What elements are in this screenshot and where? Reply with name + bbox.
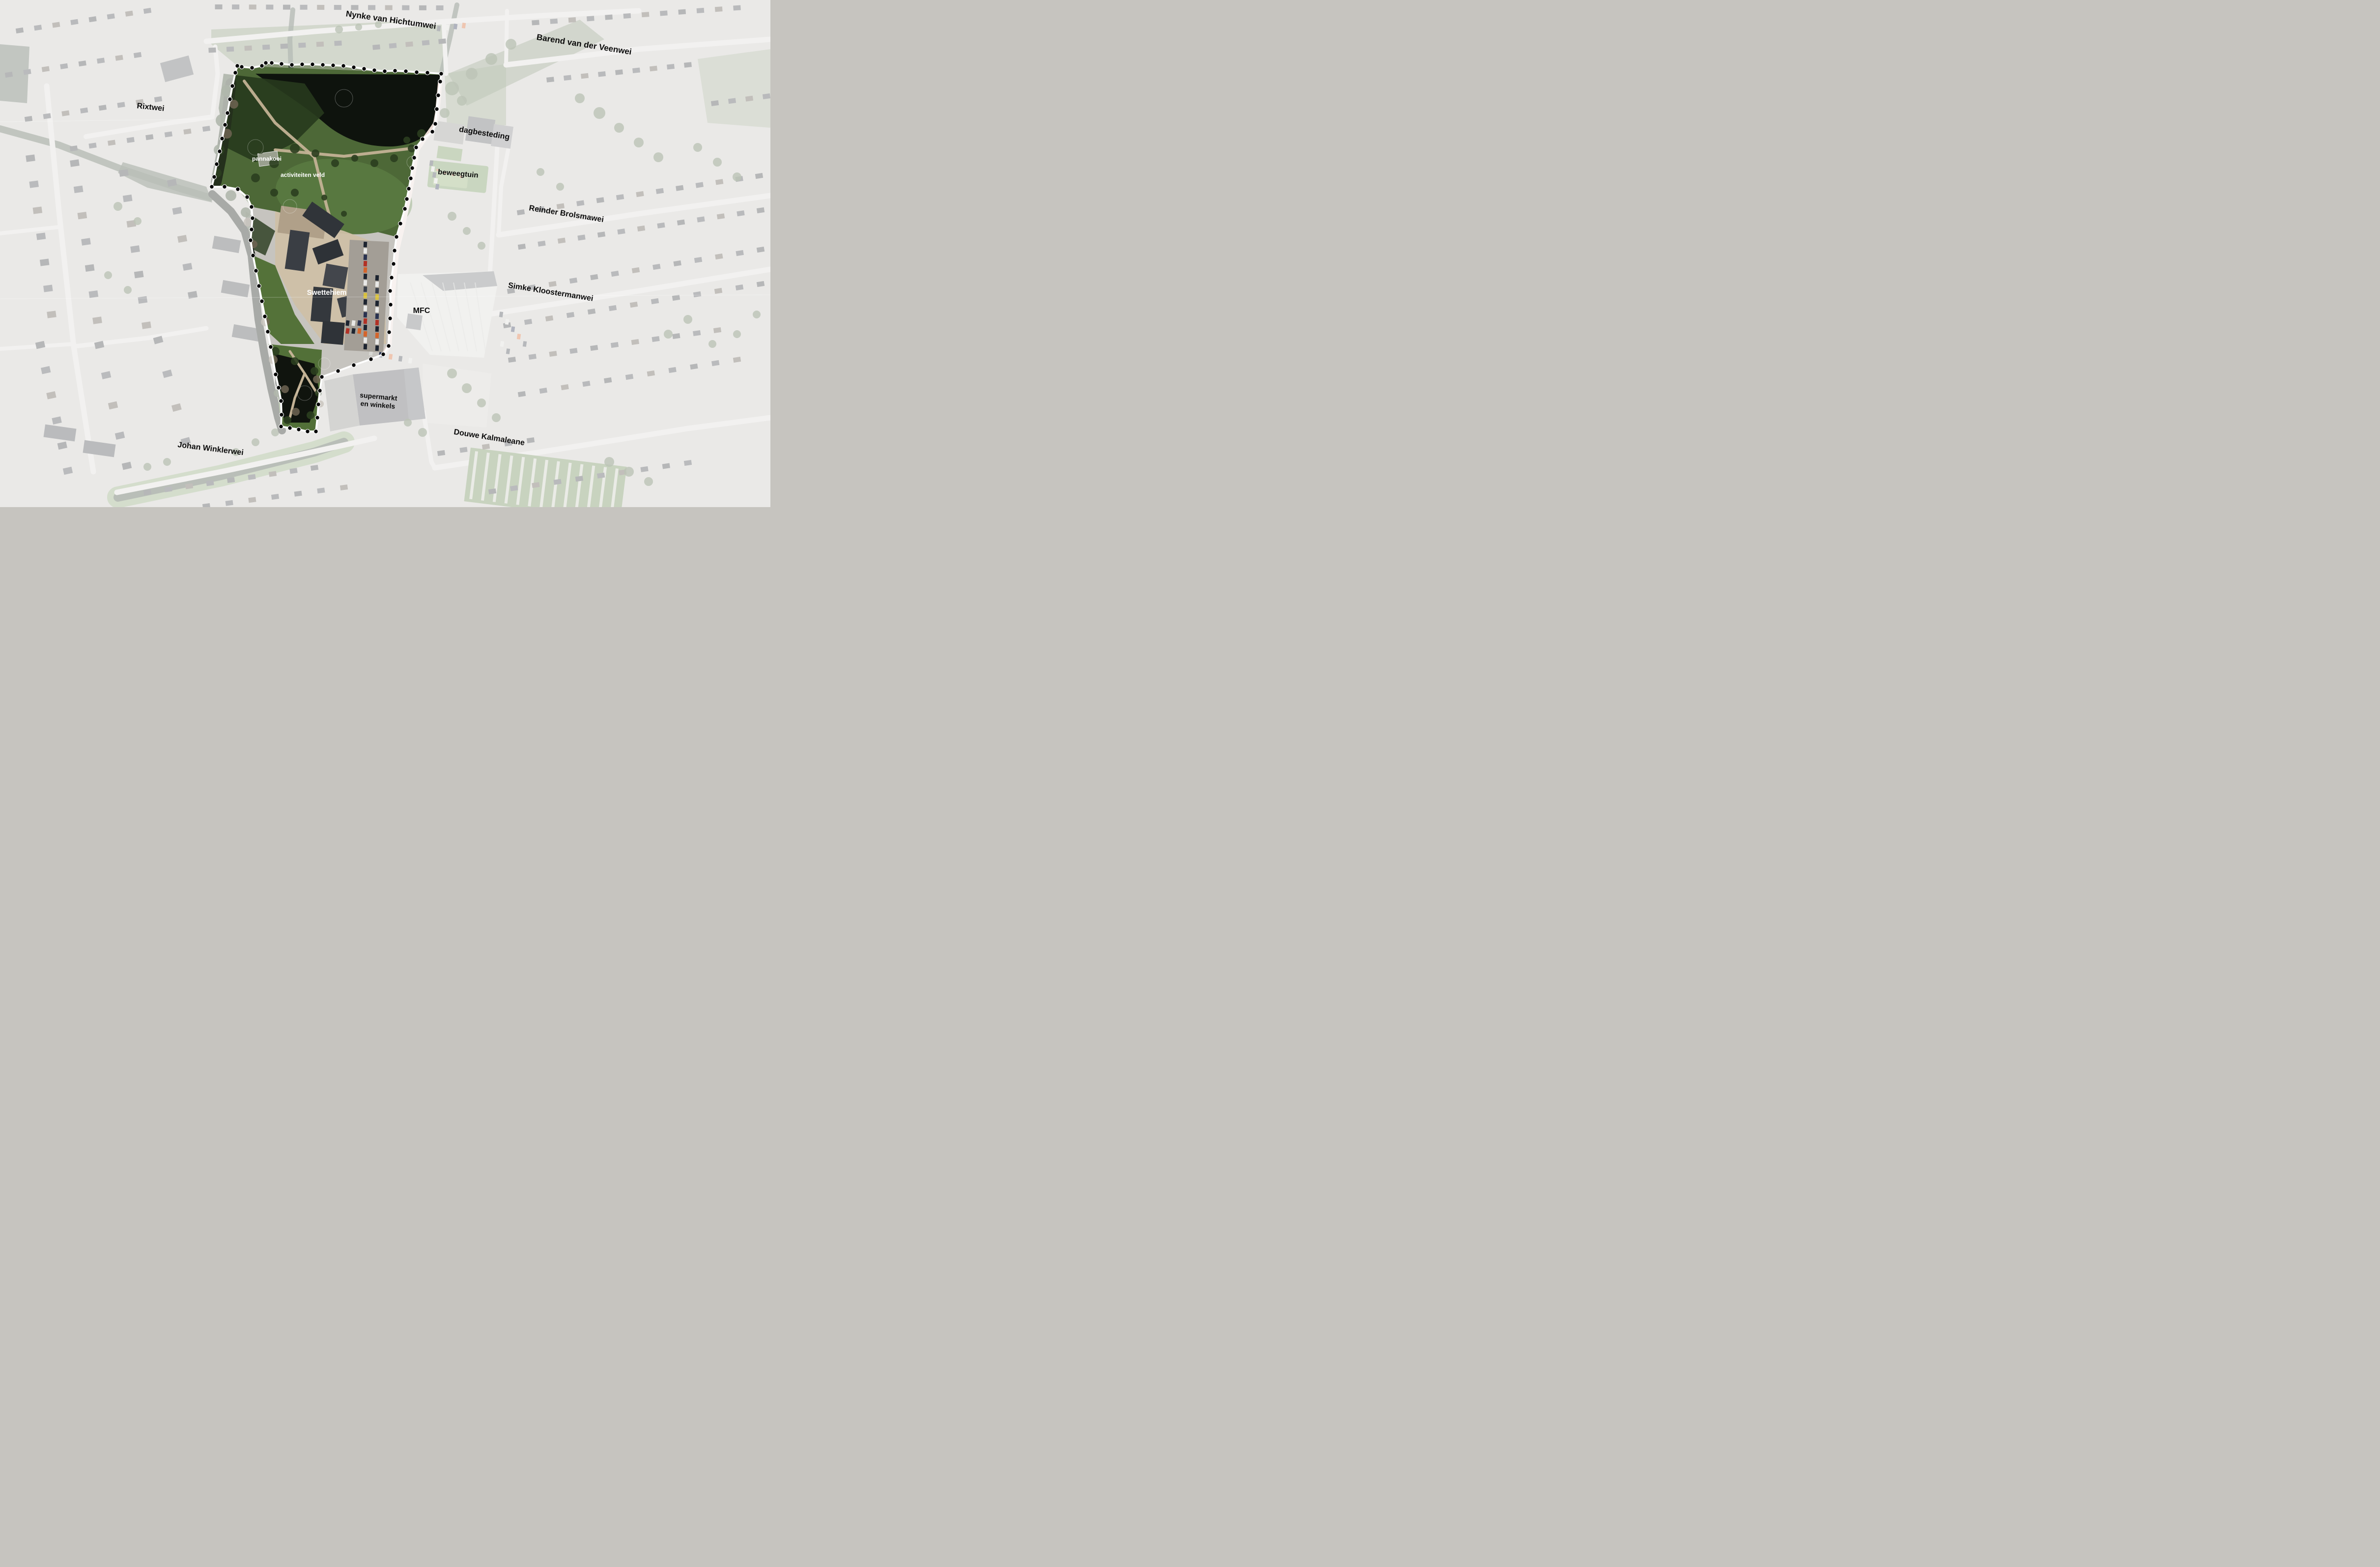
boundary-dot <box>383 69 387 74</box>
boundary-dot <box>398 222 403 226</box>
boundary-dot <box>250 205 254 209</box>
boundary-dot <box>300 62 305 67</box>
boundary-dot <box>306 429 310 434</box>
boundary-dot <box>230 84 235 88</box>
boundary-dot <box>233 71 238 75</box>
boundary-dot <box>266 330 270 334</box>
boundary-dot <box>405 197 409 201</box>
label-activiteiten-veld: activiteiten veld <box>281 171 325 178</box>
boundary-dot <box>414 145 419 150</box>
boundary-dot <box>393 69 397 73</box>
boundary-dot <box>235 64 240 68</box>
boundary-dot <box>438 80 443 84</box>
boundary-dot <box>409 176 413 181</box>
boundary-dot <box>352 65 356 70</box>
boundary-dot <box>433 122 438 126</box>
boundary-dot <box>372 68 377 73</box>
boundary-dot <box>320 375 324 379</box>
boundary-dot <box>279 425 283 429</box>
boundary-dot <box>404 69 408 74</box>
boundary-dot <box>270 61 274 65</box>
boundary-dot <box>290 63 294 67</box>
boundary-dot <box>280 62 284 66</box>
label-mfc: MFC <box>413 307 430 315</box>
boundary-dot <box>288 426 292 430</box>
boundary-dot <box>220 137 225 141</box>
boundary-dot <box>210 185 214 189</box>
boundary-dot <box>223 123 227 127</box>
boundary-dot <box>297 427 301 432</box>
boundary-dot <box>387 330 392 335</box>
boundary-dot <box>250 66 255 70</box>
boundary-dot <box>226 111 230 115</box>
boundary-dot <box>274 372 278 377</box>
boundary-dot <box>436 93 441 98</box>
boundary-dot <box>352 363 356 368</box>
boundary-dot <box>369 357 373 362</box>
boundary-dot <box>277 386 281 390</box>
boundary-dot <box>260 299 264 304</box>
boundary-dot <box>407 187 411 191</box>
label-pannakooi: pannakooi <box>252 155 282 162</box>
boundary-dot <box>421 137 425 142</box>
label-swettehiem: Swettehiem <box>307 289 347 297</box>
boundary-dot <box>403 207 407 211</box>
boundary-dot <box>251 216 255 221</box>
boundary-dot <box>223 185 227 189</box>
boundary-dot <box>393 249 397 253</box>
boundary-dot <box>439 72 444 76</box>
aerial-map: Nynke van HichtumweiBarend van der Veenw… <box>0 0 770 507</box>
boundary-dot <box>263 314 267 319</box>
boundary-dot <box>314 429 318 434</box>
boundary-dot <box>315 416 320 420</box>
boundary-dot <box>336 369 340 373</box>
boundary-dot <box>228 97 232 102</box>
boundary-dot <box>331 63 336 68</box>
boundary-dot <box>430 130 435 134</box>
boundary-dot <box>311 62 315 67</box>
boundary-dot <box>279 399 283 403</box>
boundary-dot <box>390 276 394 280</box>
label-supermarkt-en-winkels: supermarkten winkels <box>359 391 397 410</box>
boundary-dot <box>240 65 244 69</box>
boundary-dot <box>425 71 430 75</box>
boundary-dot <box>218 149 222 154</box>
boundary-dot <box>318 389 322 393</box>
boundary-dot <box>341 64 346 68</box>
boundary-dot <box>415 70 419 75</box>
boundary-dot <box>387 344 391 348</box>
boundary-dot <box>410 166 415 171</box>
boundary-dot <box>389 303 393 307</box>
boundary-dot <box>388 289 393 293</box>
boundary-dot <box>388 316 393 321</box>
boundary-dot <box>215 162 219 167</box>
boundary-dot <box>236 187 240 192</box>
boundary-dot <box>260 64 264 68</box>
boundary-dot <box>250 228 254 232</box>
boundary-dot <box>362 67 367 71</box>
aerial-map-canvas: Nynke van HichtumweiBarend van der Veenw… <box>0 0 770 507</box>
boundary-dot <box>269 345 273 349</box>
boundary-dot <box>257 284 261 288</box>
boundary-dot <box>316 402 321 407</box>
boundary-dot <box>395 235 399 239</box>
boundary-dot <box>251 254 255 258</box>
boundary-dot <box>392 262 396 266</box>
boundary-dot <box>254 269 258 273</box>
boundary-dot <box>249 238 253 243</box>
boundary-dot <box>212 175 217 179</box>
boundary-dot <box>435 107 439 112</box>
boundary-dot <box>245 195 250 199</box>
boundary-dot <box>412 156 417 160</box>
boundary-dot <box>381 352 386 357</box>
boundary-dot <box>264 61 268 65</box>
boundary-dot <box>280 413 284 417</box>
boundary-dot <box>321 63 325 67</box>
